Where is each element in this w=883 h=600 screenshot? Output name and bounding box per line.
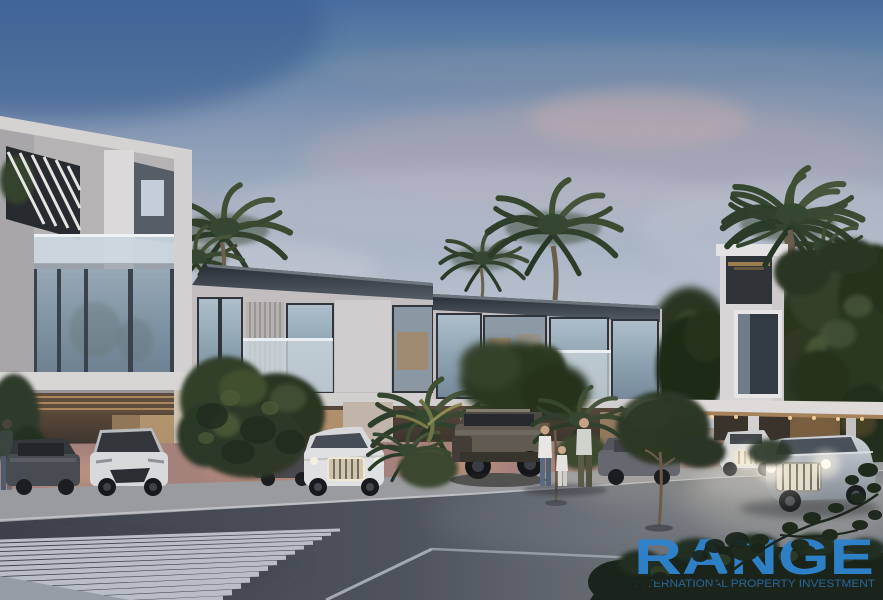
svg-text:INTERNATIONAL PROPERTY INVESTM: INTERNATIONAL PROPERTY INVESTMENT xyxy=(634,578,875,590)
